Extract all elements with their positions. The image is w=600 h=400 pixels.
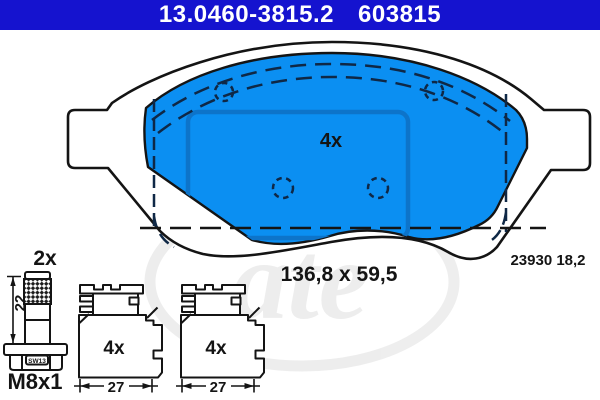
product-image: { "header": { "part_number": "13.0460-38… (0, 0, 600, 400)
bolt-flange (4, 344, 67, 355)
clip-width-label: 27 (210, 379, 227, 396)
clip-quantity-label: 4x (103, 338, 125, 359)
dimension-arrow (10, 277, 15, 286)
bolt-wrench-size-label: SW13 (28, 358, 46, 365)
bolt-tip (25, 272, 50, 279)
clip-quantity-label: 4x (205, 338, 227, 359)
reference-number: 603815 (358, 1, 441, 29)
technical-drawing: ate 4x 136,8 x 59,5 23930 18,2 2x SW13 (0, 0, 600, 400)
pad-wva-label: 23930 18,2 (510, 252, 585, 269)
header-bar: 13.0460-3815.2 603815 (0, 0, 600, 30)
bolt-thread-label: M8x1 (7, 369, 62, 394)
pad-size-label: 136,8 x 59,5 (281, 263, 398, 286)
pad-front-view: 4x (68, 42, 590, 259)
bolt-quantity-label: 2x (33, 247, 57, 270)
clip-width-label: 27 (108, 379, 125, 396)
dimension-arrow (10, 334, 15, 343)
pad-quantity-label: 4x (320, 130, 342, 152)
part-number: 13.0460-3815.2 (159, 1, 334, 29)
bolt-length-label: 22 (12, 295, 29, 312)
guide-bolt-view: 2x SW13 22 M8x1 (4, 247, 67, 394)
